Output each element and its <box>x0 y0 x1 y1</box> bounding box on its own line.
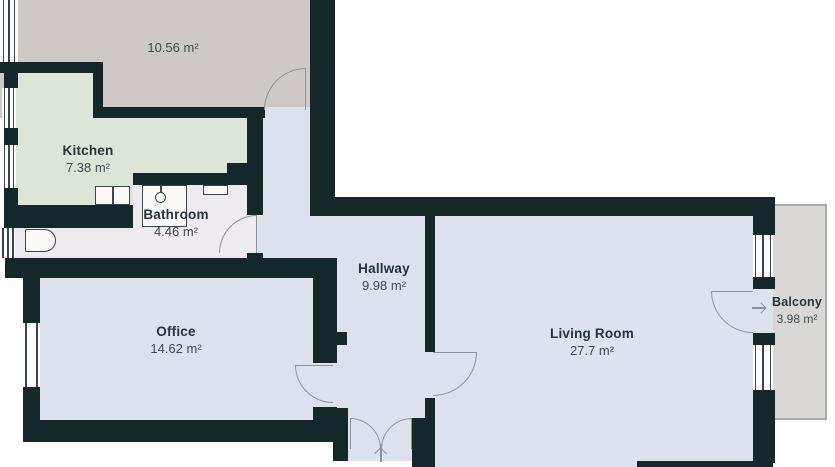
window-pane-line <box>8 145 10 188</box>
window-pane-line <box>3 0 5 62</box>
room-area: 27.7 m² <box>522 342 662 359</box>
window-pane-line <box>36 323 38 387</box>
bathroom-label: Bathroom 4.46 m² <box>116 206 236 240</box>
room-area: 10.56 m² <box>103 39 243 56</box>
window <box>0 228 15 258</box>
shower-drain-icon <box>155 192 166 203</box>
counter-divider-line <box>112 187 114 204</box>
window <box>2 145 16 188</box>
room-name: Bathroom <box>116 206 236 223</box>
room-10-56-label: 10.56 m² <box>103 39 243 56</box>
room-area: 7.38 m² <box>28 159 148 176</box>
room-area: 9.98 m² <box>324 277 444 294</box>
window-pane-line <box>755 235 757 277</box>
wall-segment <box>313 332 347 345</box>
window-pane-line <box>12 228 14 258</box>
wall-segment <box>4 128 18 145</box>
bathroom-sink <box>203 185 228 195</box>
room-area: 4.46 m² <box>116 223 236 240</box>
wall-segment <box>4 205 133 228</box>
hallway-floor <box>263 107 310 216</box>
window <box>753 345 773 390</box>
room-name: Living Room <box>522 325 662 342</box>
wall-segment <box>753 277 775 289</box>
wall-segment <box>333 408 348 461</box>
wall-segment <box>23 420 335 442</box>
wall-segment <box>227 163 257 174</box>
wall-segment <box>5 258 337 278</box>
balcony-label: Balcony 3.98 m² <box>752 294 835 328</box>
kitchen-label: Kitchen 7.38 m² <box>28 142 148 176</box>
wall-segment <box>4 188 18 205</box>
window <box>753 235 773 277</box>
wall-segment <box>23 278 40 323</box>
kitchen-sink-counter <box>95 186 130 205</box>
office-label: Office 14.62 m² <box>116 323 236 357</box>
wall-segment <box>753 390 775 463</box>
window-pane-line <box>4 145 6 188</box>
room-name: Office <box>116 323 236 340</box>
hallway-label: Hallway 9.98 m² <box>324 260 444 294</box>
window-pane-line <box>8 88 10 128</box>
window-pane-line <box>13 145 15 188</box>
room-name: Kitchen <box>28 142 148 159</box>
window-pane-line <box>2 228 4 258</box>
window <box>2 88 16 128</box>
window-pane-line <box>762 345 764 390</box>
window-pane-line <box>7 228 9 258</box>
room-area: 14.62 m² <box>116 340 236 357</box>
window-pane-line <box>8 0 10 62</box>
window-pane-line <box>14 0 16 62</box>
window-pane-line <box>770 235 772 277</box>
window <box>23 323 40 387</box>
wall-segment <box>4 62 18 88</box>
window-pane-line <box>762 235 764 277</box>
window-pane-line <box>755 345 757 390</box>
wall-segment <box>753 197 775 235</box>
room-name: Balcony <box>752 294 835 311</box>
wall-segment <box>313 197 773 216</box>
room-area: 3.98 m² <box>752 311 835 328</box>
wall-segment <box>133 173 257 185</box>
bathroom-floor <box>4 228 133 258</box>
wall-segment <box>425 398 435 467</box>
wall-segment <box>310 0 335 216</box>
window-pane-line <box>770 345 772 390</box>
room-name: Hallway <box>324 260 444 277</box>
wall-segment <box>93 107 265 118</box>
floor-plan: 10.56 m² Kitchen 7.38 m² Bathroom 4.46 m… <box>0 0 835 467</box>
window-pane-line <box>25 323 27 387</box>
wall-segment <box>753 333 775 345</box>
window-pane-line <box>4 88 6 128</box>
window <box>0 0 18 62</box>
window-pane-line <box>13 88 15 128</box>
living-room-label: Living Room 27.7 m² <box>522 325 662 359</box>
hallway-floor <box>257 216 435 262</box>
toilet <box>25 229 56 252</box>
